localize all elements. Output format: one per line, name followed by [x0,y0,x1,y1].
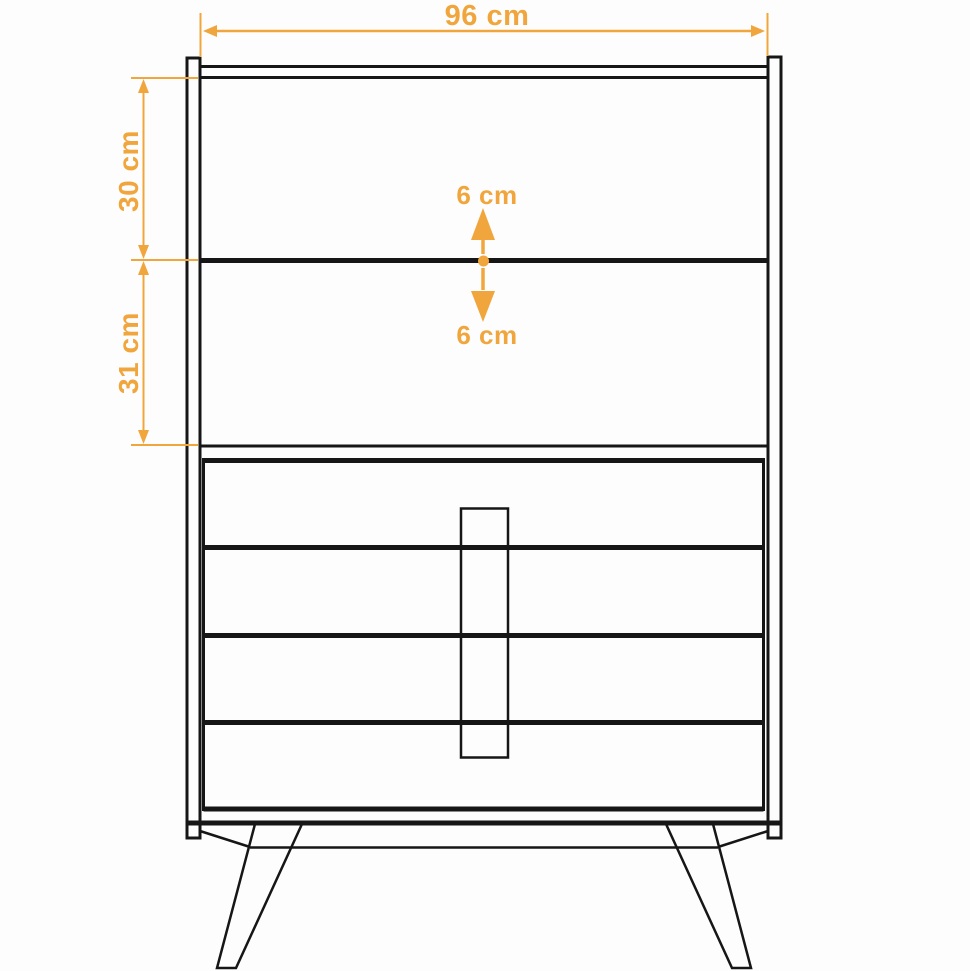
arrowhead-left-icon [203,25,217,37]
height30-dimension-label: 30 cm [113,130,144,212]
big-arrow-up-icon [471,208,495,240]
cabinet-right-side-panel [768,57,781,838]
top-section-height-dimension: 30 cm [113,78,198,260]
cabinet-top-board [200,67,768,78]
cabinet-left-side-panel [187,58,200,838]
height31-dimension-label: 31 cm [113,312,144,394]
width-dimension: 96 cm [201,0,768,57]
arrowhead-down-icon [138,430,149,444]
right-leg [666,824,751,968]
furniture-dimension-diagram: 96 cm 30 cm 31 cm 6 cm [0,0,970,971]
arrowhead-up-icon [138,261,149,275]
left-leg [217,824,302,968]
clearance-dimension: 6 cm 6 cm [456,180,517,350]
arrowhead-right-icon [751,25,765,37]
clearance-above-label: 6 cm [456,180,517,210]
right-leg-brace [718,831,768,847]
big-arrow-down-icon [471,291,495,322]
width-dimension-label: 96 cm [445,0,530,32]
arrowhead-down-icon [138,245,149,259]
arrowhead-up-icon [138,79,149,93]
middle-section-height-dimension: 31 cm [113,261,198,445]
left-leg-brace [200,831,250,847]
center-dot-icon [478,256,489,267]
clearance-below-label: 6 cm [456,320,517,350]
diagram-canvas: 96 cm 30 cm 31 cm 6 cm [0,0,970,971]
